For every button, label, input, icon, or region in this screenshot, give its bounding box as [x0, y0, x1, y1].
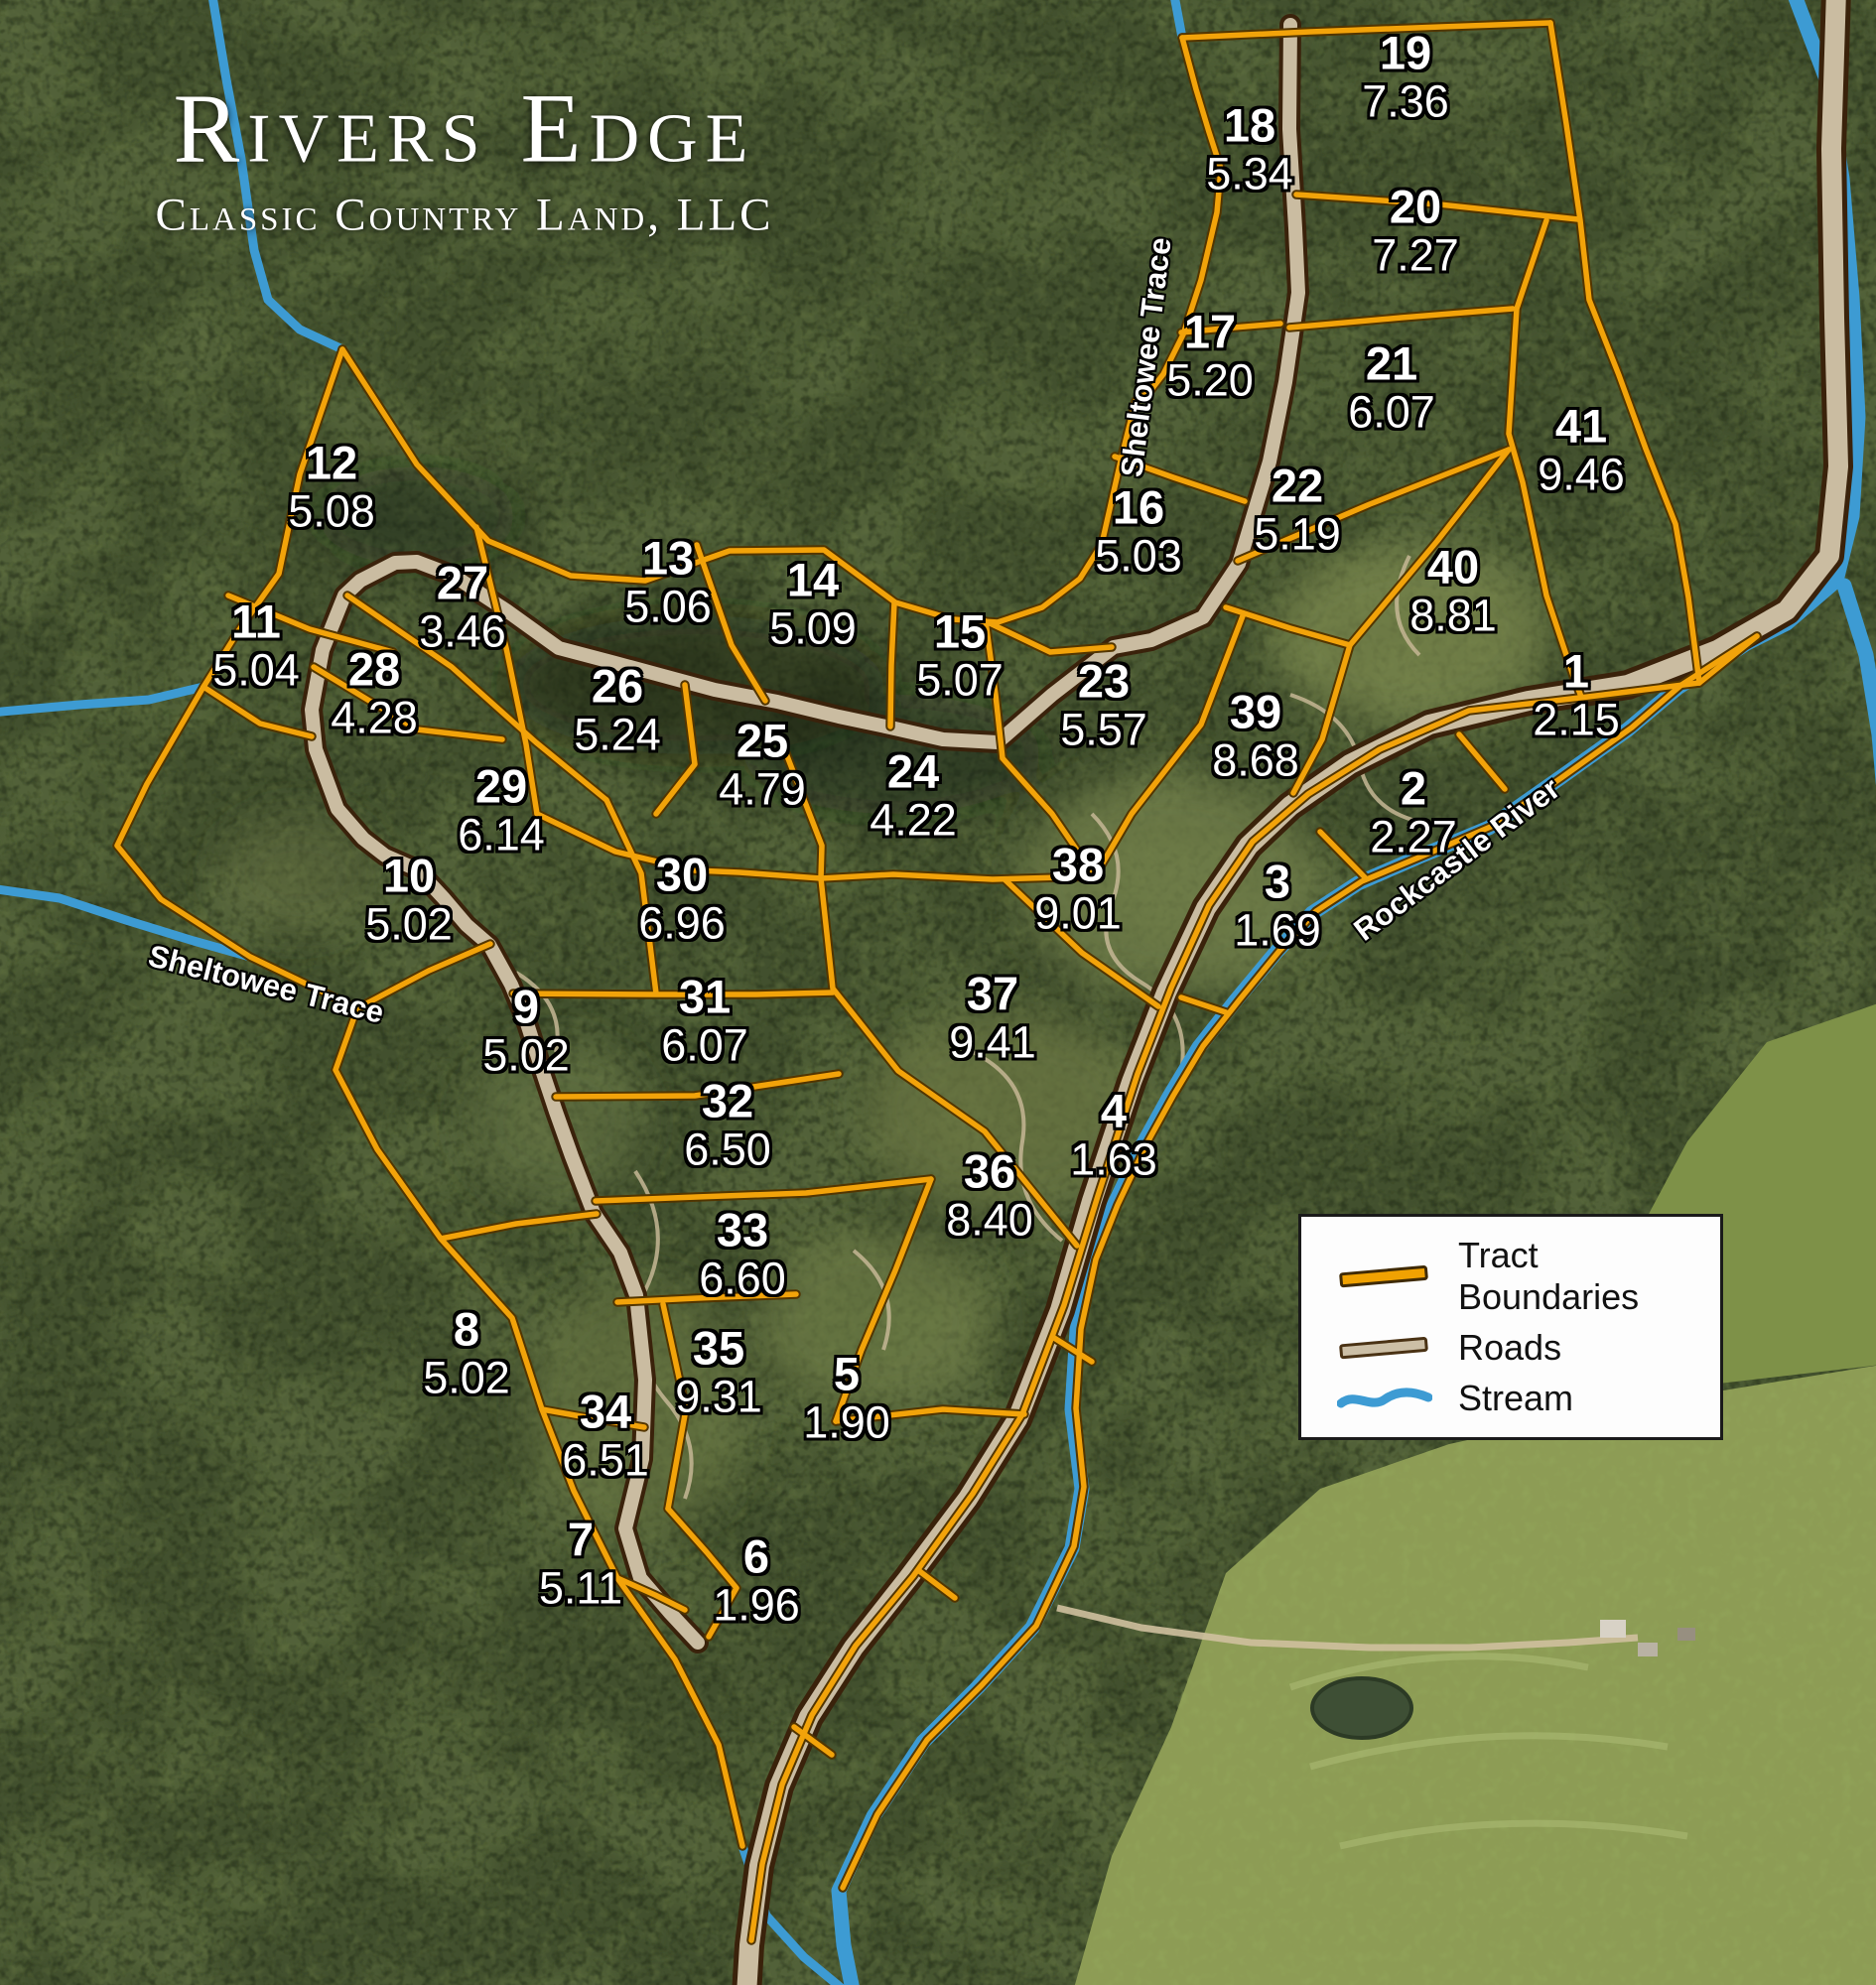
tract-number: 39: [1212, 687, 1299, 736]
tract-acreage: 6.96: [638, 899, 726, 947]
tract-label-5: 51.90: [803, 1349, 890, 1446]
tract-acreage: 5.19: [1254, 510, 1341, 558]
tract-number: 28: [331, 644, 418, 694]
tract-number: 9: [482, 982, 570, 1031]
tract-label-10: 105.02: [365, 851, 453, 948]
tract-label-16: 165.03: [1095, 482, 1182, 580]
tract-label-25: 254.79: [719, 716, 806, 813]
tract-number: 14: [769, 555, 857, 604]
tract-number: 11: [212, 596, 300, 646]
tract-number: 34: [562, 1387, 649, 1436]
tract-acreage: 6.51: [562, 1436, 649, 1484]
tract-acreage: 5.04: [212, 646, 300, 694]
tract-number: 22: [1254, 461, 1341, 510]
tract-label-29: 296.14: [458, 761, 545, 859]
tract-acreage: 6.07: [661, 1021, 748, 1069]
tract-number: 30: [638, 850, 726, 899]
legend-row-road: Roads: [1337, 1327, 1720, 1369]
tract-label-15: 155.07: [916, 606, 1004, 704]
tract-label-9: 95.02: [482, 982, 570, 1079]
tract-number: 35: [675, 1323, 762, 1373]
tract-label-13: 135.06: [624, 533, 712, 630]
legend-row-tract: Tract Boundaries: [1337, 1235, 1720, 1318]
legend-row-stream: Stream: [1337, 1378, 1720, 1419]
tract-number: 38: [1034, 840, 1122, 889]
tract-acreage: 3.46: [419, 607, 506, 655]
tract-label-30: 306.96: [638, 850, 726, 947]
tract-number: 15: [916, 606, 1004, 656]
tract-number: 33: [699, 1205, 786, 1255]
tract-acreage: 4.28: [331, 694, 418, 741]
tract-acreage: 5.09: [769, 604, 857, 652]
tract-label-11: 115.04: [212, 596, 300, 694]
tract-label-33: 336.60: [699, 1205, 786, 1302]
tract-label-35: 359.31: [675, 1323, 762, 1420]
tract-label-40: 408.81: [1409, 542, 1497, 639]
tract-number: 19: [1362, 28, 1449, 77]
tract-acreage: 9.41: [949, 1018, 1036, 1066]
tract-label-31: 316.07: [661, 972, 748, 1069]
tract-label-26: 265.24: [574, 661, 661, 758]
land-tract-map: Rivers Edge Classic Country Land, LLC 12…: [0, 0, 1876, 1985]
tract-acreage: 5.57: [1060, 706, 1147, 753]
tract-number: 24: [870, 746, 957, 796]
tract-label-1: 12.15: [1533, 646, 1620, 743]
tract-label-7: 75.11: [539, 1515, 622, 1612]
stream-swatch-icon: [1337, 1384, 1432, 1413]
tract-number: 16: [1095, 482, 1182, 532]
tract-number: 20: [1372, 182, 1459, 231]
tract-label-23: 235.57: [1060, 656, 1147, 753]
map-title: Rivers Edge: [155, 79, 773, 179]
tract-acreage: 5.02: [482, 1031, 570, 1079]
map-subtitle: Classic Country Land, LLC: [155, 193, 773, 239]
tract-number: 3: [1234, 857, 1321, 906]
tract-number: 7: [539, 1515, 622, 1564]
tract-acreage: 9.46: [1538, 451, 1625, 498]
tract-number: 21: [1348, 338, 1435, 388]
tract-acreage: 8.81: [1409, 592, 1497, 639]
tract-number: 13: [624, 533, 712, 583]
tract-label-28: 284.28: [331, 644, 418, 741]
tract-number: 4: [1070, 1086, 1157, 1135]
tract-acreage: 5.02: [365, 900, 453, 948]
tract-acreage: 7.27: [1372, 231, 1459, 279]
farm-building: [1677, 1628, 1695, 1641]
tract-label-6: 61.96: [713, 1531, 800, 1629]
tract-acreage: 5.07: [916, 656, 1004, 704]
tract-number: 10: [365, 851, 453, 900]
tract-number: 5: [803, 1349, 890, 1398]
tract-label-17: 175.20: [1166, 307, 1254, 404]
tract-number: 37: [949, 969, 1036, 1018]
tract-label-27: 273.46: [419, 558, 506, 655]
tract-acreage: 6.60: [699, 1255, 786, 1302]
tract-number: 32: [684, 1076, 771, 1125]
tract-label-39: 398.68: [1212, 687, 1299, 784]
tract-swatch-icon: [1337, 1261, 1432, 1291]
tract-acreage: 9.01: [1034, 889, 1122, 937]
tract-label-34: 346.51: [562, 1387, 649, 1484]
tract-number: 41: [1538, 401, 1625, 451]
tract-number: 29: [458, 761, 545, 811]
tract-acreage: 7.36: [1362, 77, 1449, 125]
tract-number: 36: [946, 1146, 1033, 1196]
tract-label-41: 419.46: [1538, 401, 1625, 498]
tract-acreage: 5.08: [288, 487, 375, 535]
tract-number: 1: [1533, 646, 1620, 696]
tract-label-14: 145.09: [769, 555, 857, 652]
tract-label-32: 326.50: [684, 1076, 771, 1173]
tract-acreage: 9.31: [675, 1373, 762, 1420]
tract-number: 18: [1206, 100, 1293, 150]
tract-number: 8: [423, 1304, 510, 1354]
tract-label-3: 31.69: [1234, 857, 1321, 954]
tract-number: 6: [713, 1531, 800, 1581]
tract-acreage: 6.07: [1348, 388, 1435, 436]
tract-label-12: 125.08: [288, 438, 375, 535]
legend-label: Tract Boundaries: [1458, 1235, 1720, 1318]
tract-acreage: 2.15: [1533, 696, 1620, 743]
tract-label-4: 41.63: [1070, 1086, 1157, 1183]
tract-acreage: 1.96: [713, 1581, 800, 1629]
tract-number: 31: [661, 972, 748, 1021]
tract-label-8: 85.02: [423, 1304, 510, 1401]
pond: [1312, 1678, 1411, 1738]
tract-number: 2: [1370, 763, 1457, 813]
tract-label-19: 197.36: [1362, 28, 1449, 125]
tract-acreage: 8.40: [946, 1196, 1033, 1244]
tract-label-21: 216.07: [1348, 338, 1435, 436]
tract-acreage: 5.06: [624, 583, 712, 630]
tract-acreage: 4.22: [870, 796, 957, 844]
tract-label-22: 225.19: [1254, 461, 1341, 558]
tract-label-24: 244.22: [870, 746, 957, 844]
farm-building: [1638, 1643, 1658, 1656]
farm-building: [1600, 1620, 1626, 1638]
tract-label-38: 389.01: [1034, 840, 1122, 937]
tract-acreage: 6.14: [458, 811, 545, 859]
tract-acreage: 5.02: [423, 1354, 510, 1401]
tract-acreage: 5.24: [574, 711, 661, 758]
tract-acreage: 5.34: [1206, 150, 1293, 198]
tract-acreage: 8.68: [1212, 736, 1299, 784]
tract-number: 40: [1409, 542, 1497, 592]
road-swatch-icon: [1337, 1333, 1432, 1363]
tract-acreage: 5.03: [1095, 532, 1182, 580]
legend-label: Roads: [1458, 1327, 1561, 1369]
tract-label-20: 207.27: [1372, 182, 1459, 279]
legend-label: Stream: [1458, 1378, 1573, 1419]
tract-number: 26: [574, 661, 661, 711]
tract-number: 12: [288, 438, 375, 487]
tract-label-36: 368.40: [946, 1146, 1033, 1244]
tract-number: 25: [719, 716, 806, 765]
tract-number: 27: [419, 558, 506, 607]
legend: Tract BoundariesRoadsStream: [1298, 1214, 1723, 1440]
tract-label-37: 379.41: [949, 969, 1036, 1066]
tract-number: 23: [1060, 656, 1147, 706]
map-title-block: Rivers Edge Classic Country Land, LLC: [155, 79, 773, 239]
tract-label-18: 185.34: [1206, 100, 1293, 198]
tract-acreage: 1.69: [1234, 906, 1321, 954]
tract-number: 17: [1166, 307, 1254, 356]
tract-acreage: 5.11: [539, 1564, 622, 1612]
tract-acreage: 1.90: [803, 1398, 890, 1446]
tract-acreage: 1.63: [1070, 1135, 1157, 1183]
tract-acreage: 4.79: [719, 765, 806, 813]
tract-acreage: 6.50: [684, 1125, 771, 1173]
tract-acreage: 5.20: [1166, 356, 1254, 404]
